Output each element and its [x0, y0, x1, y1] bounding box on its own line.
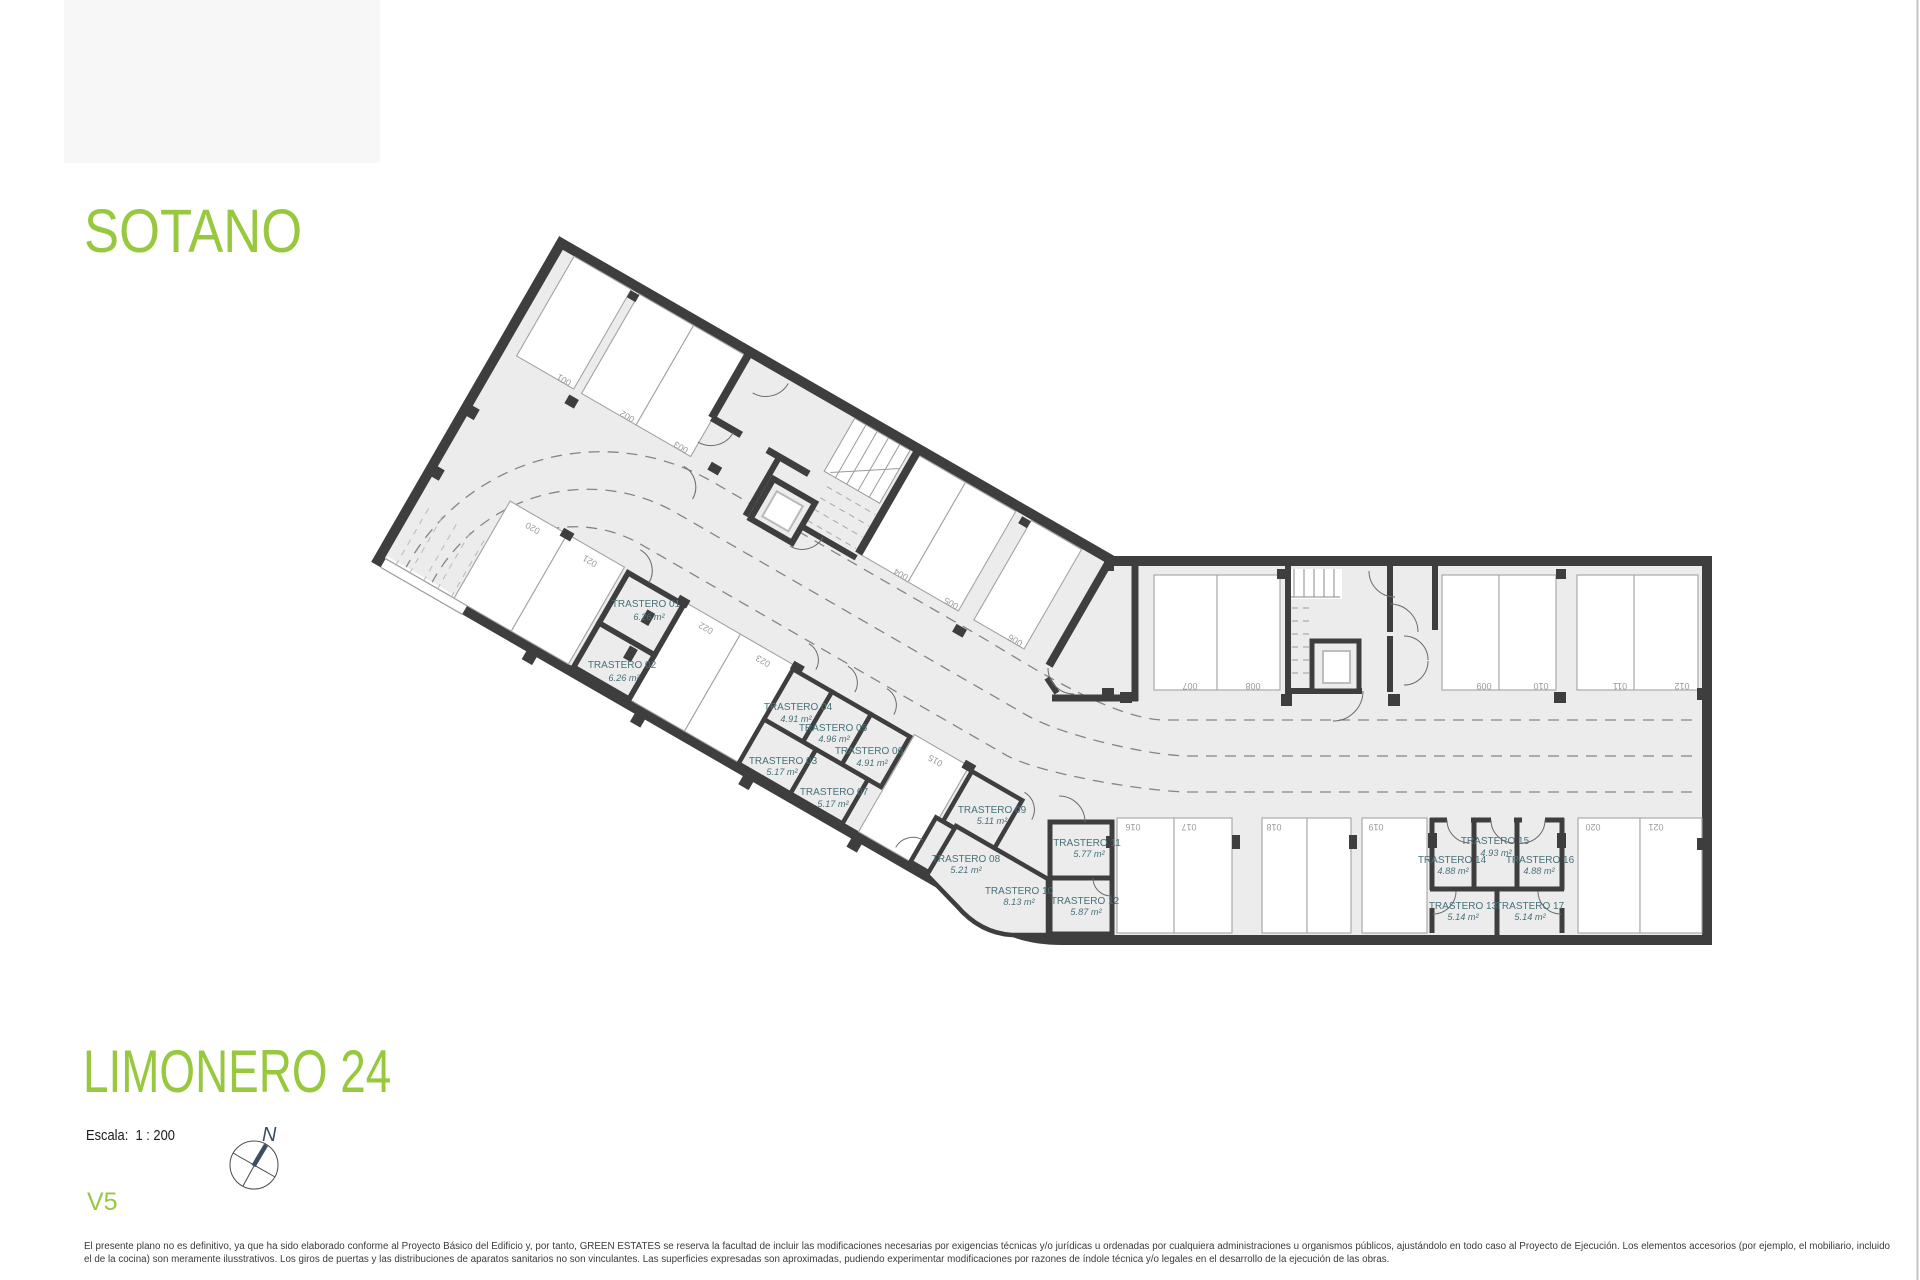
- svg-text:5.14 m²: 5.14 m²: [1514, 912, 1546, 922]
- svg-text:008: 008: [1245, 681, 1260, 691]
- svg-text:TRASTERO 02: TRASTERO 02: [588, 660, 657, 671]
- svg-text:011: 011: [1613, 681, 1627, 691]
- svg-text:5.77 m²: 5.77 m²: [1073, 849, 1105, 859]
- svg-text:TRASTERO 03: TRASTERO 03: [749, 756, 818, 767]
- svg-text:TRASTERO 17: TRASTERO 17: [1496, 901, 1565, 912]
- svg-text:TRASTERO 05: TRASTERO 05: [799, 723, 868, 734]
- svg-text:6.26 m²: 6.26 m²: [633, 612, 665, 622]
- svg-text:5.17 m²: 5.17 m²: [817, 799, 849, 809]
- svg-text:TRASTERO 16: TRASTERO 16: [1506, 855, 1575, 866]
- svg-text:5.14 m²: 5.14 m²: [1447, 912, 1479, 922]
- svg-text:4.88 m²: 4.88 m²: [1437, 866, 1469, 876]
- svg-text:5.87 m²: 5.87 m²: [1070, 907, 1102, 917]
- svg-text:TRASTERO 14: TRASTERO 14: [1418, 855, 1487, 866]
- svg-text:4.96 m²: 4.96 m²: [818, 734, 850, 744]
- svg-text:N: N: [262, 1124, 277, 1146]
- svg-text:TRASTERO 12: TRASTERO 12: [1051, 896, 1120, 907]
- svg-text:TRASTERO 11: TRASTERO 11: [1053, 838, 1121, 849]
- svg-text:TRASTERO 13: TRASTERO 13: [1429, 901, 1498, 912]
- svg-text:019: 019: [1368, 822, 1383, 832]
- svg-text:TRASTERO 07: TRASTERO 07: [800, 787, 869, 798]
- svg-text:TRASTERO 04: TRASTERO 04: [764, 702, 833, 713]
- svg-text:5.11 m²: 5.11 m²: [977, 816, 1008, 826]
- svg-text:5.21 m²: 5.21 m²: [950, 865, 982, 875]
- svg-text:4.88 m²: 4.88 m²: [1523, 866, 1555, 876]
- svg-text:TRASTERO 10: TRASTERO 10: [985, 886, 1054, 897]
- svg-text:017: 017: [1181, 822, 1196, 832]
- svg-text:5.17 m²: 5.17 m²: [766, 767, 798, 777]
- svg-text:021: 021: [1648, 822, 1663, 832]
- svg-text:4.91 m²: 4.91 m²: [856, 758, 888, 768]
- svg-text:009: 009: [1476, 681, 1491, 691]
- svg-text:020: 020: [1585, 822, 1600, 832]
- svg-text:TRASTERO 08: TRASTERO 08: [932, 854, 1001, 865]
- svg-text:010: 010: [1533, 681, 1548, 691]
- svg-text:TRASTERO 06: TRASTERO 06: [835, 746, 904, 757]
- svg-text:TRASTERO 01: TRASTERO 01: [612, 599, 681, 610]
- svg-text:018: 018: [1266, 822, 1281, 832]
- svg-text:007: 007: [1182, 681, 1197, 691]
- svg-text:016: 016: [1125, 822, 1140, 832]
- svg-text:TRASTERO 09: TRASTERO 09: [958, 805, 1027, 816]
- svg-text:012: 012: [1674, 681, 1689, 691]
- svg-text:6.26 m²: 6.26 m²: [608, 673, 640, 683]
- svg-text:TRASTERO 15: TRASTERO 15: [1461, 836, 1530, 847]
- svg-text:8.13 m²: 8.13 m²: [1003, 897, 1035, 907]
